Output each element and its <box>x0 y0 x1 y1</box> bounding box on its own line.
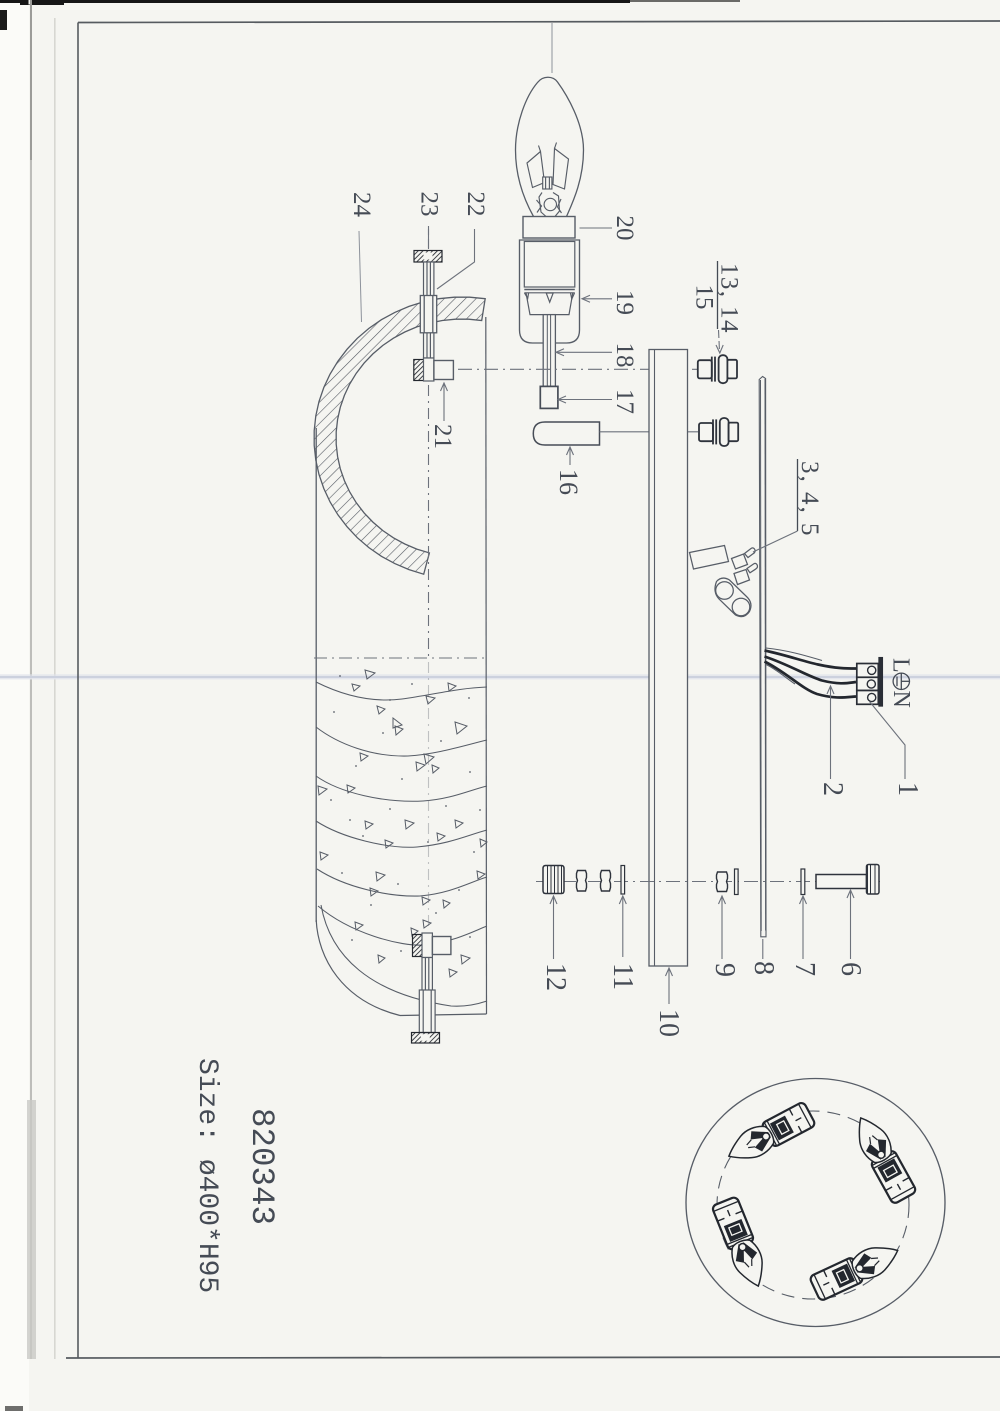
svg-text:22: 22 <box>462 192 489 217</box>
svg-text:12: 12 <box>540 963 571 991</box>
svg-text:7: 7 <box>789 962 820 976</box>
svg-text:17: 17 <box>611 389 638 414</box>
svg-text:20: 20 <box>611 216 638 241</box>
svg-text:19: 19 <box>611 290 638 315</box>
svg-text:15: 15 <box>691 285 718 310</box>
svg-text:16: 16 <box>554 469 583 495</box>
svg-text:820343: 820343 <box>243 1108 280 1225</box>
svg-text:11: 11 <box>607 963 638 990</box>
svg-text:3, 4, 5: 3, 4, 5 <box>796 461 823 538</box>
svg-text:1: 1 <box>892 782 923 796</box>
svg-text:10: 10 <box>653 1009 684 1037</box>
svg-text:23: 23 <box>416 192 443 217</box>
svg-text:24: 24 <box>348 192 375 218</box>
svg-text:8: 8 <box>748 961 779 975</box>
svg-text:N: N <box>888 691 914 708</box>
svg-text:2: 2 <box>817 782 848 796</box>
svg-text:L: L <box>888 658 914 673</box>
svg-text:6: 6 <box>835 962 866 976</box>
svg-text:Size: ø400*H95: Size: ø400*H95 <box>191 1058 222 1293</box>
svg-text:9: 9 <box>709 963 740 977</box>
svg-text:18: 18 <box>611 343 638 368</box>
svg-text:13, 14: 13, 14 <box>716 263 743 334</box>
svg-text:21: 21 <box>429 424 456 449</box>
